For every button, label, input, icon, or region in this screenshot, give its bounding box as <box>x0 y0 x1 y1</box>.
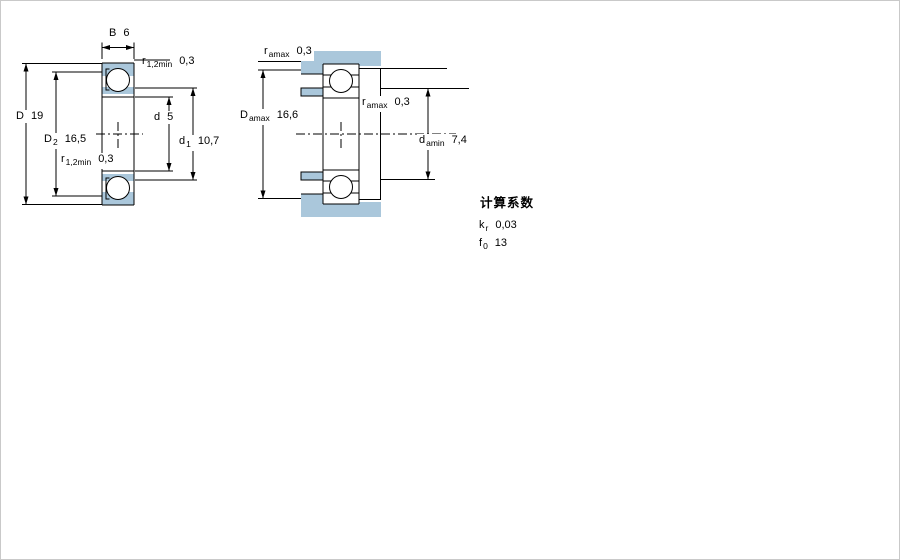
bearing-drawing <box>1 1 899 559</box>
technical-drawing-canvas: B6 r1,2min0,3 D19 D216,5 r1,2min0,3 d5 d… <box>0 0 900 560</box>
arrowhead <box>54 72 59 80</box>
dim-r-chamfer-bottom-label: r1,2min0,3 <box>59 153 115 169</box>
dim-shaft-abutment-label: damin7,4 <box>417 134 469 150</box>
arrowhead <box>24 197 29 205</box>
ball-top <box>107 69 130 92</box>
dim-r-fillet-mid-label: ramax0,3 <box>360 96 412 112</box>
arrowhead <box>126 45 134 50</box>
arrowhead <box>167 163 172 171</box>
factor-kr-label: kr0,03 <box>479 219 517 235</box>
dim-bore-diameter-label: d5 <box>152 111 175 124</box>
dim-shoulder-diameter-label: d110,7 <box>177 135 221 151</box>
dim-outer-diameter-label: D19 <box>14 110 45 123</box>
arrowhead <box>54 188 59 196</box>
arrowhead <box>261 70 266 78</box>
dim-r-chamfer-top-label: r1,2min0,3 <box>142 55 194 71</box>
arrowhead <box>24 64 29 72</box>
right-diagram-dimensions <box>258 62 469 199</box>
ball-bottom <box>330 176 353 199</box>
shaft-shoulder-bottom <box>301 172 323 180</box>
arrowhead <box>426 172 431 180</box>
dim-width-label: B6 <box>109 27 129 40</box>
arrowhead <box>261 191 266 199</box>
calculation-factors-heading: 计算系数 <box>480 197 534 210</box>
arrowhead <box>191 88 196 96</box>
arrowhead <box>191 172 196 180</box>
ball-bottom <box>107 177 130 200</box>
shaft-shoulder-top <box>301 88 323 96</box>
arrowhead <box>167 97 172 105</box>
arrowhead <box>102 45 110 50</box>
factor-f0-label: f013 <box>479 237 507 253</box>
dim-recess-diameter-label: D216,5 <box>42 133 88 149</box>
left-diagram-bearing-section <box>96 63 143 205</box>
dim-r-fillet-top-label: ramax0,3 <box>262 45 314 61</box>
ball-top <box>330 70 353 93</box>
arrowhead <box>426 89 431 97</box>
dim-housing-abutment-label: Damax16,6 <box>238 109 300 125</box>
